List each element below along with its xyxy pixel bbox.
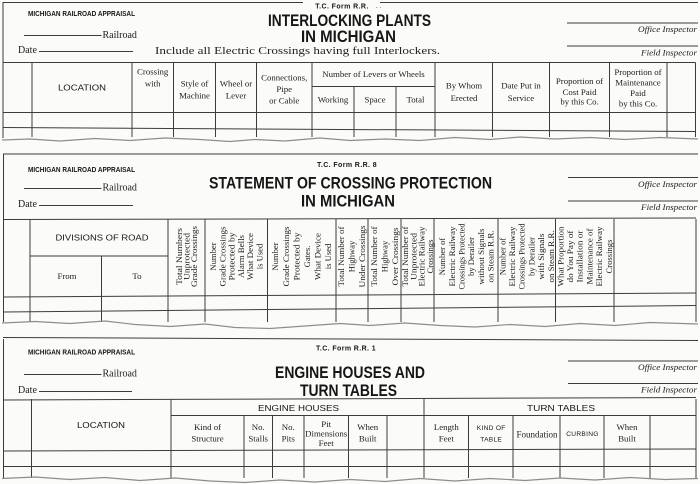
svg-text:Grade Crossings: Grade Crossings bbox=[189, 225, 199, 287]
svg-text:T.C. Form R.R. 1: T.C. Form R.R. 1 bbox=[316, 346, 376, 353]
svg-text:Cost Paid: Cost Paid bbox=[563, 87, 598, 97]
svg-text:on Steam R.R.: on Steam R.R. bbox=[486, 231, 496, 283]
svg-text:Field Inspector: Field Inspector bbox=[640, 386, 698, 395]
svg-text:Erected: Erected bbox=[451, 93, 478, 103]
svg-text:Protected by: Protected by bbox=[291, 232, 301, 281]
svg-text:Wheel or: Wheel or bbox=[220, 79, 253, 89]
svg-text:by Derailer: by Derailer bbox=[526, 237, 536, 276]
svg-text:Highway: Highway bbox=[347, 240, 357, 272]
svg-text:What Proportion: What Proportion bbox=[555, 226, 565, 287]
svg-text:Kind of: Kind of bbox=[194, 422, 221, 432]
svg-text:Pipe: Pipe bbox=[276, 84, 292, 94]
svg-text:or Cable: or Cable bbox=[269, 96, 299, 106]
svg-text:Pits: Pits bbox=[282, 434, 296, 444]
svg-text:ENGINE HOUSES AND: ENGINE HOUSES AND bbox=[275, 363, 425, 382]
svg-text:Date Put in: Date Put in bbox=[501, 81, 541, 91]
svg-text:by Derailer: by Derailer bbox=[466, 237, 476, 276]
svg-text:with: with bbox=[145, 79, 161, 89]
svg-text:Connections,: Connections, bbox=[261, 73, 307, 83]
svg-text:Length: Length bbox=[434, 422, 460, 432]
svg-text:ENGINE HOUSES: ENGINE HOUSES bbox=[258, 404, 340, 413]
svg-text:Number of Levers or Wheels: Number of Levers or Wheels bbox=[322, 69, 425, 79]
svg-text:with Signals: with Signals bbox=[536, 233, 546, 280]
svg-text:What Device: What Device bbox=[313, 233, 323, 280]
svg-text:by this Co.: by this Co. bbox=[560, 97, 598, 107]
svg-text:Built: Built bbox=[359, 434, 377, 444]
svg-text:Railroad: Railroad bbox=[103, 183, 137, 194]
svg-text:Total Number of: Total Number of bbox=[336, 226, 346, 286]
svg-text:KIND OF: KIND OF bbox=[477, 425, 506, 432]
svg-text:Gates.: Gates. bbox=[302, 246, 312, 268]
svg-text:Include all Electric Crossings: Include all Electric Crossings having fu… bbox=[155, 46, 440, 57]
svg-text:Highway: Highway bbox=[380, 240, 390, 272]
svg-text:When: When bbox=[357, 422, 379, 432]
svg-text:Maintenance: Maintenance bbox=[615, 78, 661, 88]
svg-text:STATEMENT OF CROSSING PROTECTI: STATEMENT OF CROSSING PROTECTION bbox=[209, 174, 492, 193]
svg-text:IN MICHIGAN: IN MICHIGAN bbox=[301, 27, 396, 46]
svg-text:No.: No. bbox=[282, 422, 295, 432]
svg-text:is Used: is Used bbox=[323, 243, 333, 269]
svg-text:Total Number of: Total Number of bbox=[369, 226, 379, 286]
svg-text:Date: Date bbox=[18, 385, 37, 396]
svg-text:without Signals: without Signals bbox=[476, 228, 486, 285]
svg-text:DIVISIONS OF ROAD: DIVISIONS OF ROAD bbox=[56, 234, 149, 243]
svg-text:Date: Date bbox=[18, 45, 37, 56]
svg-text:Number of: Number of bbox=[497, 238, 507, 276]
svg-text:MICHIGAN RAILROAD APPRAISAL: MICHIGAN RAILROAD APPRAISAL bbox=[28, 350, 135, 357]
svg-text:TURN TABLES: TURN TABLES bbox=[527, 404, 596, 413]
svg-text:Proportion of: Proportion of bbox=[614, 67, 661, 77]
svg-text:Number of: Number of bbox=[437, 238, 447, 276]
svg-text:Over Crossings: Over Crossings bbox=[390, 227, 400, 286]
svg-text:By Whom: By Whom bbox=[446, 81, 482, 91]
svg-text:is Used: is Used bbox=[255, 243, 265, 269]
svg-text:Crossings: Crossings bbox=[604, 239, 614, 274]
svg-text:Date: Date bbox=[18, 199, 37, 210]
svg-text:Crossings Protected: Crossings Protected bbox=[457, 223, 467, 290]
svg-text:CURBING: CURBING bbox=[566, 431, 599, 438]
svg-text:Railroad: Railroad bbox=[103, 30, 137, 41]
svg-text:T.C. Form R.R. 8: T.C. Form R.R. 8 bbox=[317, 162, 377, 169]
svg-text:From: From bbox=[57, 271, 76, 281]
svg-text:Grade Crossings: Grade Crossings bbox=[281, 226, 291, 287]
svg-text:Working: Working bbox=[318, 95, 349, 105]
svg-text:Field Inspector: Field Inspector bbox=[640, 203, 698, 212]
svg-text:Office Inspector: Office Inspector bbox=[638, 25, 698, 34]
svg-text:Pit: Pit bbox=[321, 419, 331, 429]
svg-text:Total: Total bbox=[407, 95, 426, 105]
svg-text:Dimensions: Dimensions bbox=[305, 429, 348, 439]
svg-text:do You Pay of: do You Pay of bbox=[565, 230, 575, 282]
svg-text:LOCATION: LOCATION bbox=[77, 421, 125, 430]
svg-text:Crossings: Crossings bbox=[425, 239, 435, 274]
svg-text:MICHIGAN RAILROAD APPRAISAL: MICHIGAN RAILROAD APPRAISAL bbox=[28, 11, 135, 18]
svg-text:Feet: Feet bbox=[439, 434, 455, 444]
svg-text:Proportion of: Proportion of bbox=[556, 76, 603, 86]
svg-text:T.C. Form R.R.: T.C. Form R.R. bbox=[315, 4, 368, 11]
svg-text:No.: No. bbox=[252, 422, 265, 432]
svg-text:Maintenance of: Maintenance of bbox=[584, 228, 594, 284]
svg-text:Feet: Feet bbox=[319, 438, 335, 448]
svg-text:Installation or: Installation or bbox=[575, 230, 585, 282]
svg-text:LOCATION: LOCATION bbox=[58, 84, 106, 93]
svg-text:Machine: Machine bbox=[179, 91, 210, 101]
svg-text:by this Co.: by this Co. bbox=[619, 99, 657, 109]
svg-text:Structure: Structure bbox=[191, 434, 223, 444]
svg-text:Lever: Lever bbox=[226, 91, 247, 101]
svg-text:MICHIGAN RAILROAD APPRAISAL: MICHIGAN RAILROAD APPRAISAL bbox=[28, 167, 135, 174]
svg-text:Stalls: Stalls bbox=[248, 434, 268, 444]
svg-text:Electric Railway: Electric Railway bbox=[594, 226, 604, 287]
svg-text:Built: Built bbox=[618, 434, 636, 444]
svg-text:TABLE: TABLE bbox=[480, 437, 502, 444]
svg-text:Under Crossings: Under Crossings bbox=[357, 225, 367, 288]
svg-text:TURN TABLES: TURN TABLES bbox=[300, 381, 397, 400]
svg-text:Number: Number bbox=[270, 242, 280, 270]
svg-text:. .: . . bbox=[376, 4, 381, 10]
svg-text:IN MICHIGAN: IN MICHIGAN bbox=[301, 192, 395, 211]
svg-text:on Steam R.R.: on Steam R.R. bbox=[546, 231, 556, 283]
svg-text:Field Inspector: Field Inspector bbox=[640, 49, 698, 58]
svg-text:Railroad: Railroad bbox=[103, 369, 137, 380]
svg-text:Office Inspector: Office Inspector bbox=[638, 363, 698, 372]
svg-text:Crossings Protected: Crossings Protected bbox=[517, 223, 527, 290]
svg-text:Electric Railway: Electric Railway bbox=[507, 226, 517, 287]
svg-text:Service: Service bbox=[508, 93, 534, 103]
svg-text:Foundation: Foundation bbox=[516, 430, 558, 440]
svg-text:Crossing: Crossing bbox=[137, 67, 169, 77]
svg-text:When: When bbox=[616, 422, 638, 432]
svg-text:Electric Railway: Electric Railway bbox=[447, 226, 457, 287]
svg-text:Paid: Paid bbox=[630, 88, 646, 98]
svg-text:Space: Space bbox=[364, 95, 385, 105]
svg-text:Office Inspector: Office Inspector bbox=[638, 180, 698, 189]
svg-text:To: To bbox=[132, 271, 142, 281]
svg-text:Style of: Style of bbox=[181, 79, 209, 89]
